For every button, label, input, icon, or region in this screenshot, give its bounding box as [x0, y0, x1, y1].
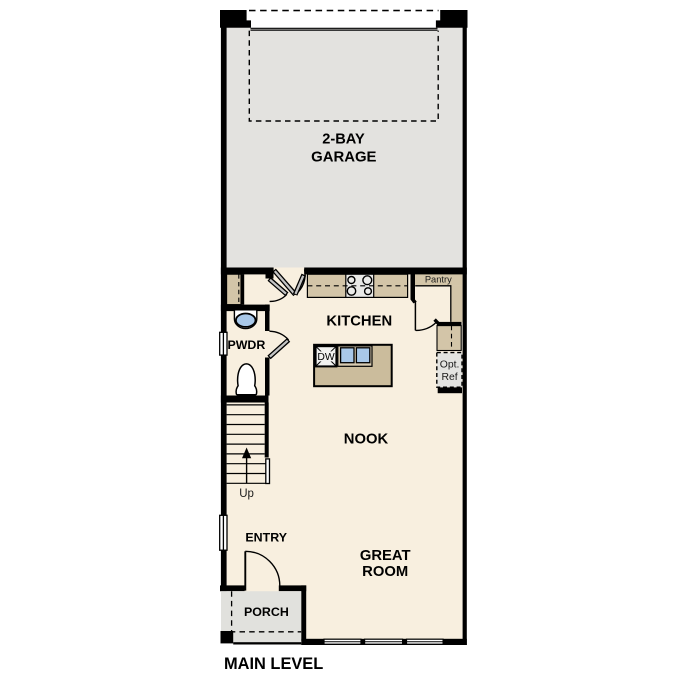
svg-text:NOOK: NOOK — [344, 431, 389, 447]
svg-text:PWDR: PWDR — [227, 338, 265, 352]
svg-text:DW: DW — [317, 352, 335, 363]
svg-text:2-BAY: 2-BAY — [322, 132, 365, 148]
svg-text:KITCHEN: KITCHEN — [326, 314, 392, 330]
svg-text:Ref: Ref — [442, 372, 458, 383]
svg-text:GARAGE: GARAGE — [311, 150, 376, 166]
svg-text:Up: Up — [239, 488, 254, 500]
svg-text:GREAT: GREAT — [360, 548, 411, 564]
svg-text:Opt.: Opt. — [440, 360, 460, 371]
svg-text:ENTRY: ENTRY — [245, 531, 287, 545]
svg-text:MAIN LEVEL: MAIN LEVEL — [224, 655, 323, 673]
svg-text:Pantry: Pantry — [425, 275, 452, 285]
svg-text:ROOM: ROOM — [362, 564, 408, 580]
svg-text:PORCH: PORCH — [244, 605, 289, 619]
